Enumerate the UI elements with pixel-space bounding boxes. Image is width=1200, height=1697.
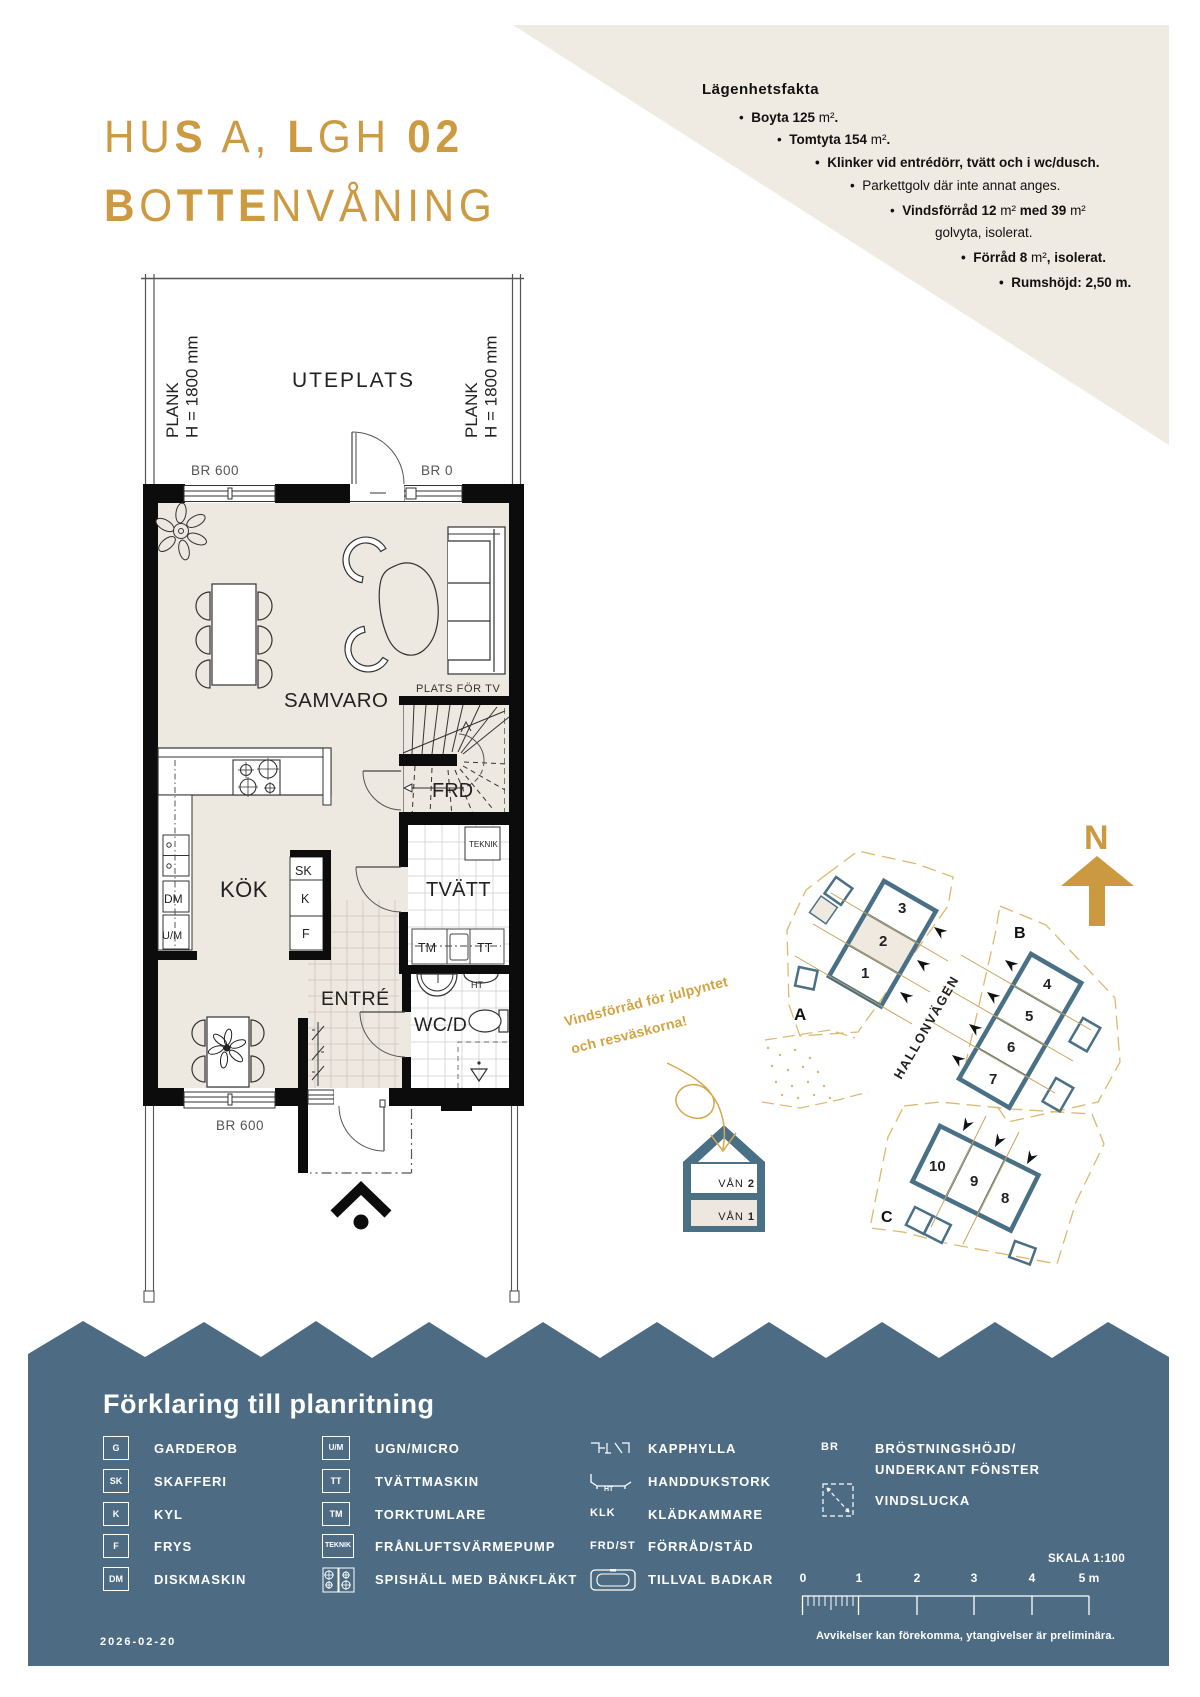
svg-text:A: A [794, 1005, 806, 1024]
svg-text:0: 0 [800, 1571, 807, 1585]
svg-text:7: 7 [989, 1071, 997, 1088]
svg-text:5 m: 5 m [1079, 1571, 1100, 1585]
svg-text:VÅN 1: VÅN 1 [718, 1210, 755, 1223]
svg-text:4: 4 [1029, 1571, 1036, 1585]
svg-text:HALLONVÄGEN: HALLONVÄGEN [891, 973, 962, 1082]
svg-text:HT: HT [604, 1486, 614, 1492]
svg-text:1: 1 [861, 965, 869, 982]
svg-text:C: C [881, 1209, 893, 1226]
svg-text:2: 2 [879, 933, 887, 950]
svg-text:1: 1 [856, 1571, 863, 1585]
svg-text:2: 2 [914, 1571, 921, 1585]
svg-text:9: 9 [970, 1173, 978, 1190]
svg-text:8: 8 [1001, 1190, 1009, 1207]
svg-text:6: 6 [1007, 1039, 1015, 1056]
svg-text:VÅN 2: VÅN 2 [718, 1177, 755, 1190]
svg-text:3: 3 [971, 1571, 978, 1585]
svg-text:10: 10 [929, 1158, 946, 1175]
svg-text:4: 4 [1043, 976, 1052, 993]
svg-text:N: N [1084, 819, 1109, 857]
svg-text:3: 3 [898, 900, 906, 917]
svg-text:5: 5 [1025, 1008, 1033, 1025]
svg-text:B: B [1014, 925, 1026, 942]
